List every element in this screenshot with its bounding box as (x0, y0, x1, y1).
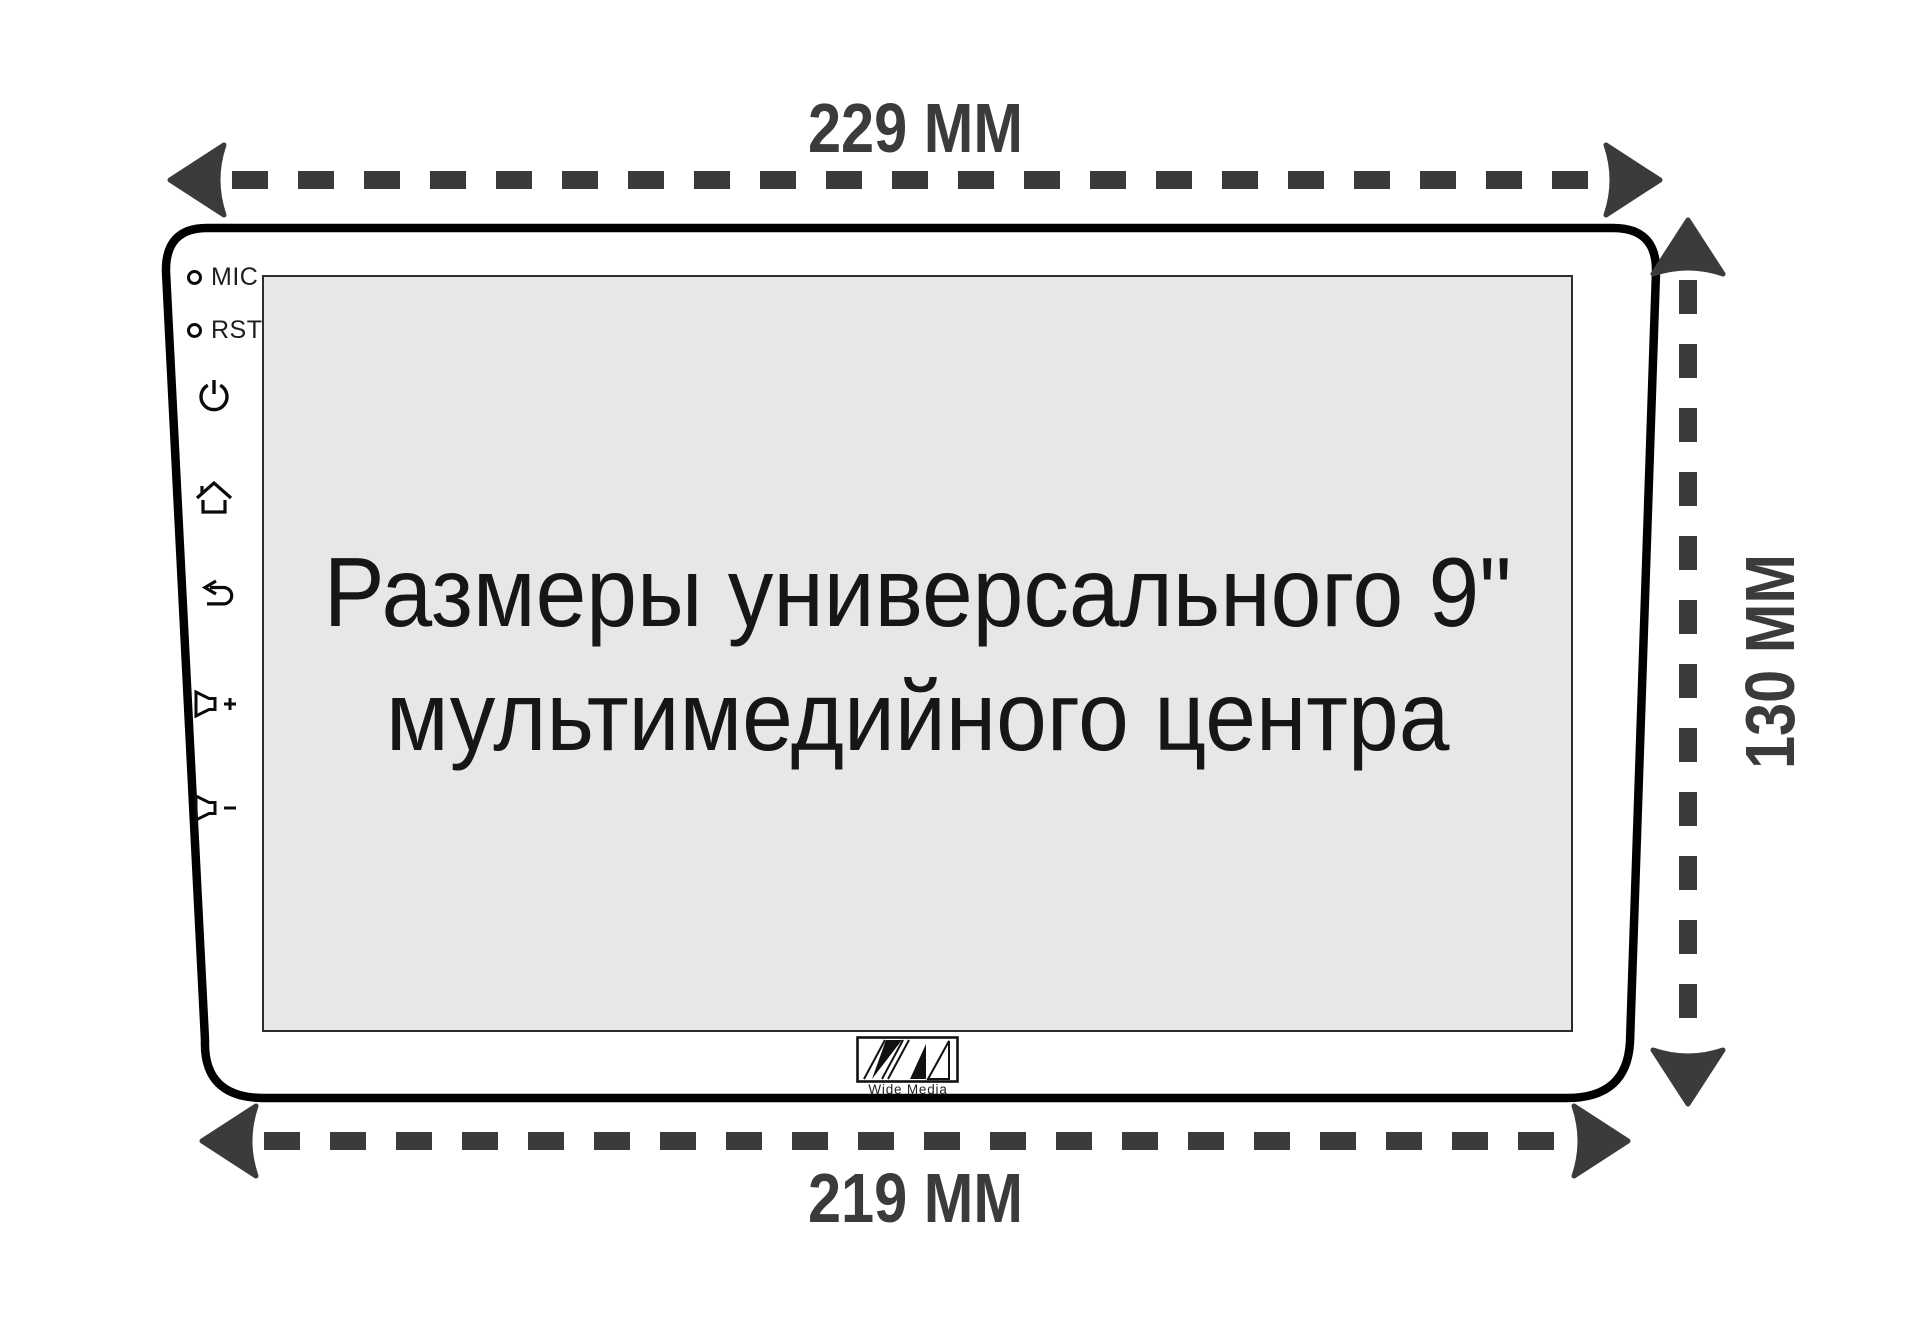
screen-caption-line1: Размеры универсального 9" (324, 530, 1512, 654)
right-dimension-arrow (1646, 216, 1730, 1108)
volume-plus-icon (193, 688, 239, 720)
screen-caption-line2: мультимедийного центра (386, 654, 1449, 778)
mic-hole-icon (187, 270, 202, 285)
home-icon (193, 477, 235, 515)
brand-name: Wide Media (846, 1082, 970, 1097)
reset-hole-icon (187, 323, 202, 338)
device-screen: Размеры универсального 9" мультимедийног… (262, 275, 1573, 1032)
control-mic: MIC (187, 265, 258, 290)
top-dimension-arrow (166, 138, 1664, 222)
control-rst: RST (187, 318, 263, 343)
wide-media-logo-icon (856, 1036, 960, 1084)
rst-label: RST (211, 318, 263, 343)
volume-minus-icon (193, 792, 239, 824)
bottom-dimension-label: 219 ММ (198, 1163, 1632, 1233)
power-icon (197, 377, 231, 413)
right-dimension-label: 130 ММ (1730, 216, 1810, 1108)
mic-label: MIC (211, 265, 258, 290)
back-arrow-icon (197, 578, 235, 610)
dimension-diagram: Размеры универсального 9" мультимедийног… (0, 0, 1920, 1318)
